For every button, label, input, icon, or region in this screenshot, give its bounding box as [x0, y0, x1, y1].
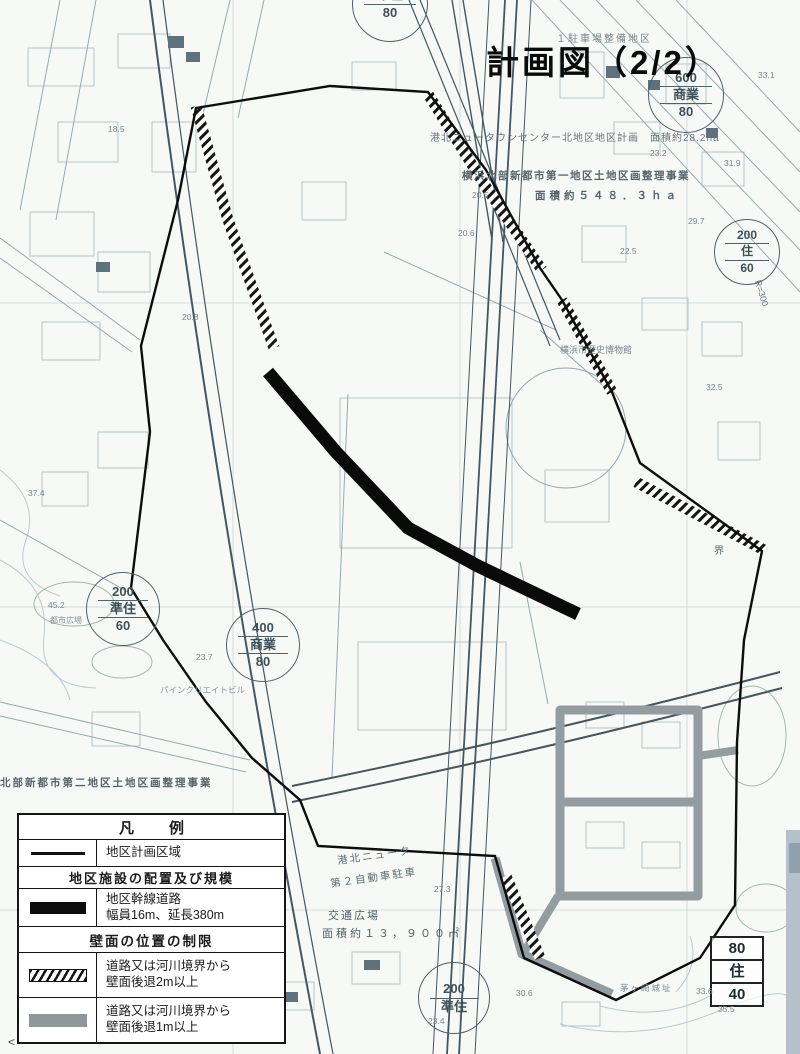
spot-elevation: 23.7 — [196, 652, 213, 662]
stamp-use: 準住 — [110, 602, 136, 616]
legend-header: 凡 例 — [19, 815, 284, 839]
museum-label: 横浜市歴史博物館 — [560, 345, 632, 355]
stamp-bcr: 80 — [679, 105, 693, 119]
arterial-road-path — [268, 372, 578, 614]
legend-label-setback2m-line2: 壁面後退2m以上 — [106, 975, 284, 991]
legend-row-district-boundary: 地区計画区域 — [19, 839, 284, 866]
spot-elevation: 45.2 — [48, 600, 65, 610]
spot-elevation: 31.9 — [724, 158, 741, 168]
city-plaza-label: 都市広場 — [50, 616, 82, 625]
spot-elevation: 20.5 — [472, 190, 489, 200]
spot-elevation: 27.3 — [434, 884, 451, 894]
legend-row-setback-2m: 道路又は河川境界から 壁面後退2m以上 — [19, 952, 284, 997]
legend-label-setback1m-line1: 道路又は河川境界から — [106, 1004, 284, 1020]
spot-elevation: 35.5 — [718, 1004, 735, 1014]
stamp-bcr: 80 — [256, 655, 270, 669]
boundary-character-label: 界 — [714, 546, 724, 558]
spot-elevation: 20.6 — [458, 228, 475, 238]
spot-elevation: 23.2 — [650, 148, 667, 158]
spot-elevation: 30.6 — [516, 988, 533, 998]
district-plan-label: 港北ニュータウンセンター北地区地区計画 面積約28.2ha — [430, 133, 720, 145]
spot-elevation: 23.4 — [428, 1016, 445, 1026]
legend-label-road-size: 幅員16m、延長380m — [106, 908, 284, 924]
legend-swatch-boundary-line — [31, 852, 85, 855]
scan-artifact-chip — [789, 843, 800, 873]
legend-label-setback2m-line1: 道路又は河川境界から — [106, 959, 284, 975]
legend-label-road-name: 地区幹線道路 — [106, 892, 284, 908]
castle-ruins-label: 茅ヶ崎城址 — [620, 984, 673, 994]
stamp-bcr: 60 — [116, 619, 130, 633]
spot-elevation: 29.7 — [688, 216, 705, 226]
spot-elevation: 18.5 — [108, 124, 125, 134]
stamp-use: 商業 — [250, 638, 276, 652]
land-readjustment1-area-label: 面積約５４８．３ｈａ — [535, 190, 680, 202]
stamp-bcr: 60 — [740, 262, 753, 275]
zoning-stamp-residential-200: 200 住 60 — [714, 219, 780, 285]
spot-elevation: 37.4 — [28, 488, 45, 498]
stamp-use: 商業 — [673, 88, 699, 102]
stamp-far: 200 — [112, 585, 134, 599]
corner-mark: < — [8, 1036, 15, 1050]
land-readjustment1-label: 横浜北部新都市第一地区土地区画整理事業 — [462, 170, 690, 182]
stamp-use: 準住 — [441, 1000, 467, 1014]
plan-map-sheet: １駐車場整備地区 計画図（2/2） 港北ニュータウンセンター北地区地区計画 面積… — [0, 0, 800, 1054]
spot-elevation: 20.8 — [182, 312, 199, 322]
zoning-stamp-lowrise-80-40: 80 住 40 — [710, 938, 764, 1007]
legend-section-facilities: 地区施設の配置及び規模 — [19, 866, 284, 888]
spot-elevation: 32.5 — [706, 382, 723, 392]
stamp-use: 住 — [741, 245, 753, 258]
stamp-far: 400 — [252, 621, 274, 635]
legend-row-arterial-road: 地区幹線道路 幅員16m、延長380m — [19, 888, 284, 926]
stamp-use: 住 — [710, 959, 764, 984]
pine-building-label: パインクリエイトビル — [160, 686, 245, 696]
stamp-far: 80 — [710, 936, 764, 961]
stamp-use: 準住 — [377, 0, 403, 3]
stamp-far: 200 — [443, 982, 465, 996]
stamp-far: 200 — [737, 229, 757, 242]
legend-section-wall-position: 壁面の位置の制限 — [19, 926, 284, 952]
legend-swatch-setback-2m — [29, 969, 87, 982]
transport-plaza-label: 交通広場 — [328, 910, 380, 923]
legend-swatch-arterial-road — [30, 902, 86, 914]
legend-row-setback-1m: 道路又は河川境界から 壁面後退1m以上 — [19, 997, 284, 1042]
spot-elevation: 33.6 — [696, 986, 713, 996]
zoning-stamp-quasi-residential-200: 200 準住 60 — [86, 572, 160, 646]
spot-elevation: 22.5 — [620, 246, 637, 256]
zoning-stamp-commercial-400: 400 商業 80 — [226, 608, 300, 682]
spot-elevation: 33.1 — [758, 70, 775, 80]
legend: 凡 例 地区計画区域 地区施設の配置及び規模 地区幹線道路 幅員16m、延長38… — [17, 813, 286, 1044]
land-readjustment2-label: 北部新都市第二地区土地区画整理事業 — [0, 777, 213, 789]
legend-label-boundary: 地区計画区域 — [106, 845, 284, 861]
legend-label-setback1m-line2: 壁面後退1m以上 — [106, 1020, 284, 1036]
legend-swatch-setback-1m — [29, 1014, 87, 1027]
sheet-title: 計画図（2/2） — [486, 36, 721, 84]
stamp-bcr: 80 — [383, 6, 397, 20]
transport-plaza-area-label: 面積約１３，９００㎡ — [322, 928, 462, 941]
